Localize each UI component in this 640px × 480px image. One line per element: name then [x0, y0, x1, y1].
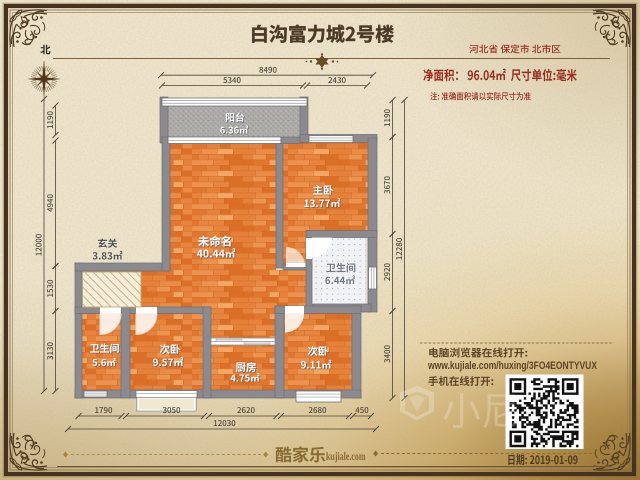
- svg-text:kujiale.com: kujiale.com: [326, 451, 366, 463]
- svg-text:www.kujiale.com/huxing/3FO4EON: www.kujiale.com/huxing/3FO4EONTYVUX: [427, 360, 597, 372]
